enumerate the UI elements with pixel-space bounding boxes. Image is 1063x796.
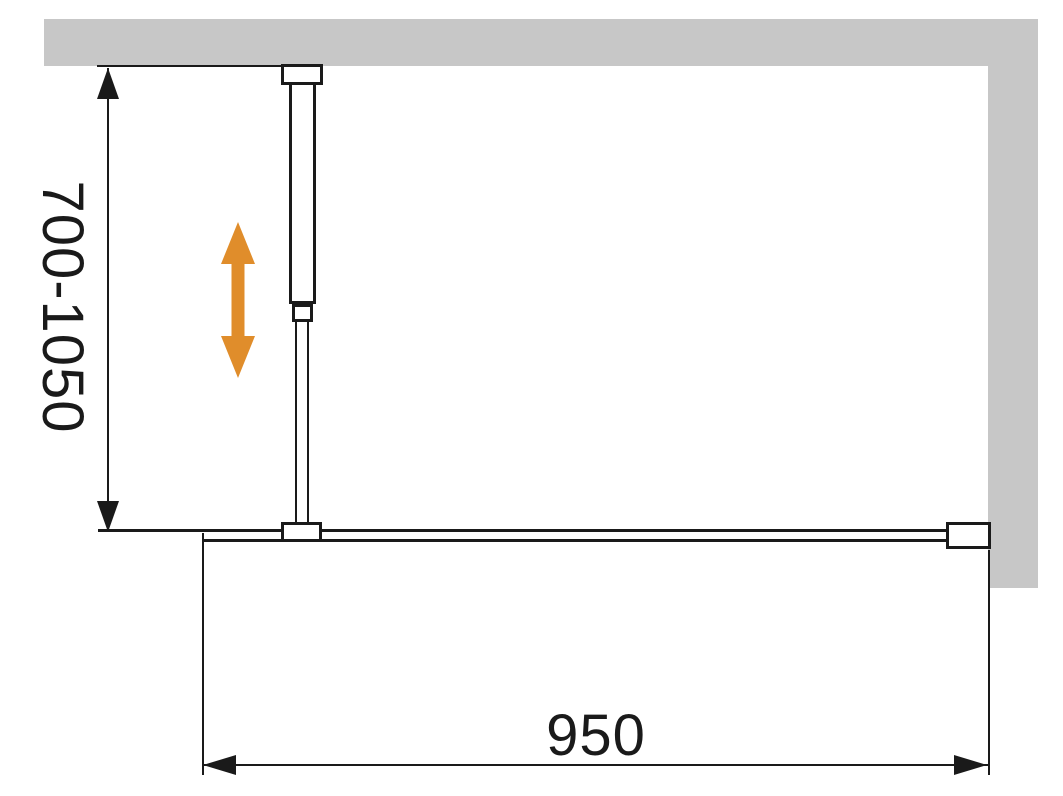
installation-diagram: 700-1050 950 [0,0,1063,796]
vertical-dimension-line [107,68,109,532]
wall-profile-bracket [946,522,991,549]
arrow-left-icon [203,755,236,775]
wall-right [988,19,1038,588]
height-range-label: 700-1050 [33,180,91,433]
extension-line-950-right [988,550,990,775]
extension-line-top [97,65,283,67]
extension-line-950-left [202,533,204,775]
support-bar-lower-tube [295,322,309,523]
support-bar-collar [292,304,313,322]
support-bar-upper-tube [289,85,316,304]
arrow-up-icon [97,68,119,99]
arrow-down-icon [97,501,119,532]
width-label: 950 [546,707,646,765]
wall-bracket-top [281,64,323,85]
double-arrow-vertical-icon [218,220,258,380]
double-arrow-shape [221,222,255,378]
glass-clamp [281,522,322,542]
arrow-right-icon [954,755,987,775]
wall-top [44,19,1038,66]
